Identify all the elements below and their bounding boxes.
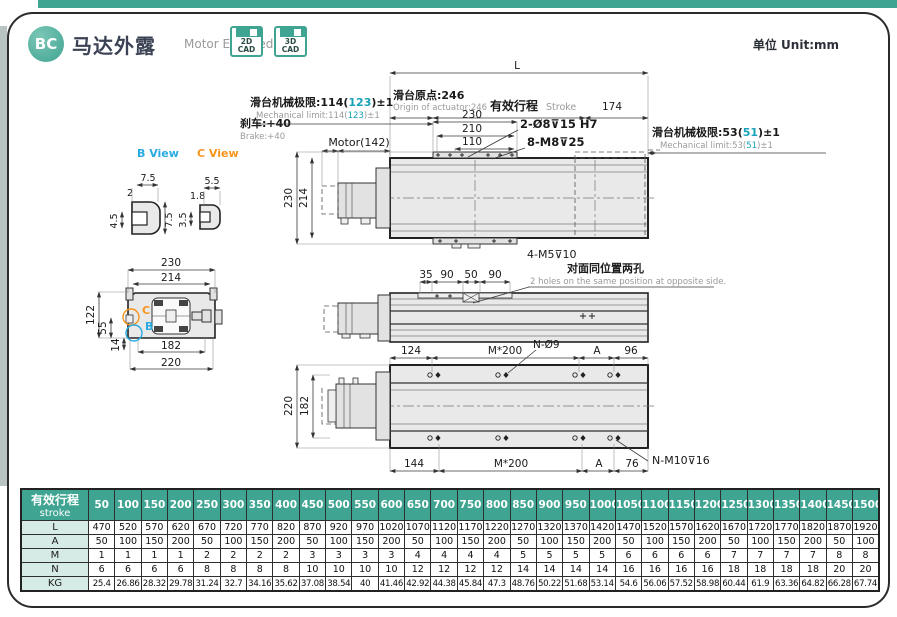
row-label-a: A bbox=[21, 535, 89, 549]
stroke-col-header: 500 bbox=[326, 489, 352, 521]
table-cell: 4 bbox=[431, 549, 457, 563]
table-cell: 56.06 bbox=[642, 577, 668, 592]
dim-c-35: 3.5 bbox=[178, 212, 189, 227]
dim-76: 76 bbox=[625, 458, 639, 470]
table-cell: 570 bbox=[141, 521, 167, 535]
stroke-col-header: 1500 bbox=[852, 489, 879, 521]
stroke-col-header: 750 bbox=[457, 489, 483, 521]
note-opposite-holes-cn: 对面同位置两孔 bbox=[567, 261, 644, 275]
dim-210: 210 bbox=[462, 123, 482, 135]
table-row: KG25.426.8628.3229.7831.2432.734.1635.62… bbox=[21, 577, 879, 592]
table-cell: 18 bbox=[773, 563, 799, 577]
table-cell: 1570 bbox=[668, 521, 694, 535]
technical-drawing: L 滑台原点:246 Origin of actuator:246 有效行程 S… bbox=[0, 0, 897, 487]
top-view-drawing: L 滑台原点:246 Origin of actuator:246 有效行程 S… bbox=[240, 60, 826, 261]
table-cell: 14 bbox=[589, 563, 615, 577]
dim-stroke-en: Stroke bbox=[546, 102, 576, 113]
table-cell: 200 bbox=[800, 535, 826, 549]
dim-s14: 14 bbox=[110, 338, 122, 352]
table-cell: 100 bbox=[536, 535, 562, 549]
table-cell: 28.32 bbox=[141, 577, 167, 592]
dim-b-75-right: 7.5 bbox=[164, 212, 175, 227]
table-cell: 41.46 bbox=[378, 577, 404, 592]
table-cell: 1820 bbox=[800, 521, 826, 535]
table-cell: 100 bbox=[747, 535, 773, 549]
table-cell: 50 bbox=[615, 535, 641, 549]
table-cell: 920 bbox=[326, 521, 352, 535]
c-detail-view: C View 5.5 1.8 3.5 bbox=[178, 147, 239, 229]
dim-m200-bottom: M*200 bbox=[494, 458, 528, 470]
table-cell: 200 bbox=[378, 535, 404, 549]
callout-m10-holes: N-M10⊽16 bbox=[652, 454, 710, 467]
table-cell: 8 bbox=[220, 563, 246, 577]
table-cell: 58.98 bbox=[694, 577, 720, 592]
stroke-header-cn: 有效行程 bbox=[22, 491, 88, 508]
dim-stroke-cn: 有效行程 bbox=[490, 98, 538, 113]
table-cell: 6 bbox=[694, 549, 720, 563]
table-cell: 10 bbox=[352, 563, 378, 577]
dim-124: 124 bbox=[401, 345, 421, 357]
table-cell: 12 bbox=[484, 563, 510, 577]
table-cell: 12 bbox=[405, 563, 431, 577]
b-view-label: B View bbox=[137, 147, 179, 160]
table-cell: 670 bbox=[194, 521, 220, 535]
stroke-col-header: 650 bbox=[405, 489, 431, 521]
table-cell: 1 bbox=[168, 549, 194, 563]
table-cell: 50 bbox=[826, 535, 852, 549]
table-cell: 150 bbox=[563, 535, 589, 549]
dim-144: 144 bbox=[404, 458, 424, 470]
table-cell: 1670 bbox=[721, 521, 747, 535]
stroke-col-header: 250 bbox=[194, 489, 220, 521]
table-cell: 10 bbox=[299, 563, 325, 577]
dim-s220: 220 bbox=[161, 357, 181, 369]
table-cell: 47.3 bbox=[484, 577, 510, 592]
table-cell: 100 bbox=[642, 535, 668, 549]
table-cell: 57.52 bbox=[668, 577, 694, 592]
table-cell: 1 bbox=[115, 549, 141, 563]
table-cell: 18 bbox=[747, 563, 773, 577]
table-cell: 6 bbox=[89, 563, 115, 577]
table-cell: 1370 bbox=[563, 521, 589, 535]
table-cell: 720 bbox=[220, 521, 246, 535]
table-cell: 520 bbox=[115, 521, 141, 535]
stroke-col-header: 550 bbox=[352, 489, 378, 521]
stroke-col-header: 200 bbox=[168, 489, 194, 521]
stroke-table-wrap: 有效行程stroke501001502002503003504004505005… bbox=[20, 488, 880, 592]
table-cell: 620 bbox=[168, 521, 194, 535]
stroke-col-header: 1450 bbox=[826, 489, 852, 521]
table-cell: 150 bbox=[141, 535, 167, 549]
stroke-col-header: 100 bbox=[115, 489, 141, 521]
dim-174: 174 bbox=[602, 101, 622, 113]
callout-m5-holes: 4-M5⊽10 bbox=[527, 248, 577, 261]
table-cell: 5 bbox=[563, 549, 589, 563]
table-cell: 16 bbox=[615, 563, 641, 577]
table-cell: 100 bbox=[220, 535, 246, 549]
table-cell: 60.44 bbox=[721, 577, 747, 592]
table-cell: 5 bbox=[589, 549, 615, 563]
table-cell: 150 bbox=[352, 535, 378, 549]
table-row: N666688881010101012121212141414141616161… bbox=[21, 563, 879, 577]
table-cell: 1320 bbox=[536, 521, 562, 535]
stroke-col-header: 1400 bbox=[800, 489, 826, 521]
dim-b-75-top: 7.5 bbox=[140, 173, 155, 184]
stroke-col-header: 800 bbox=[484, 489, 510, 521]
table-cell: 1520 bbox=[642, 521, 668, 535]
table-cell: 2 bbox=[194, 549, 220, 563]
stroke-col-header: 1150 bbox=[668, 489, 694, 521]
mech-limit-right-en: Mechanical limit:53(51)±1 bbox=[660, 141, 773, 151]
dim-motor: Motor(142) bbox=[328, 136, 389, 149]
stroke-dimension-table: 有效行程stroke501001502002503003504004505005… bbox=[20, 488, 880, 592]
mech-limit-right-cn: 滑台机械极限:53(51)±1 bbox=[652, 125, 780, 139]
row-label-l: L bbox=[21, 521, 89, 535]
table-cell: 4 bbox=[405, 549, 431, 563]
dim-c-55: 5.5 bbox=[204, 176, 219, 187]
table-cell: 25.4 bbox=[89, 577, 115, 592]
table-cell: 50 bbox=[405, 535, 431, 549]
stroke-col-header: 600 bbox=[378, 489, 404, 521]
stroke-col-header: 150 bbox=[141, 489, 167, 521]
table-cell: 8 bbox=[194, 563, 220, 577]
table-cell: 18 bbox=[800, 563, 826, 577]
table-cell: 3 bbox=[299, 549, 325, 563]
table-cell: 12 bbox=[431, 563, 457, 577]
callout-m8-holes: 8-M8⊽25 bbox=[527, 135, 585, 149]
table-cell: 4 bbox=[484, 549, 510, 563]
dim-brake-en: Brake:+40 bbox=[240, 132, 285, 142]
table-cell: 20 bbox=[826, 563, 852, 577]
table-cell: 6 bbox=[615, 549, 641, 563]
table-cell: 1020 bbox=[378, 521, 404, 535]
table-cell: 6 bbox=[168, 563, 194, 577]
table-cell: 4 bbox=[457, 549, 483, 563]
table-cell: 8 bbox=[852, 549, 879, 563]
dim-b-45: 4.5 bbox=[109, 213, 120, 228]
dim-s230: 230 bbox=[161, 257, 181, 269]
table-cell: 1470 bbox=[615, 521, 641, 535]
table-cell: 1270 bbox=[510, 521, 536, 535]
table-cell: 38.54 bbox=[326, 577, 352, 592]
table-cell: 150 bbox=[457, 535, 483, 549]
stroke-col-header: 1250 bbox=[721, 489, 747, 521]
stroke-col-header: 850 bbox=[510, 489, 536, 521]
table-cell: 61.9 bbox=[747, 577, 773, 592]
mech-limit-left-cn: 滑台机械极限:114(123)±1 bbox=[250, 95, 393, 109]
table-cell: 40 bbox=[352, 577, 378, 592]
stroke-col-header: 1300 bbox=[747, 489, 773, 521]
table-cell: 1 bbox=[89, 549, 115, 563]
table-cell: 970 bbox=[352, 521, 378, 535]
b-detail-view: B View 7.5 2 7.5 4.5 bbox=[109, 147, 179, 234]
note-opposite-holes-en: 2 holes on the same position at opposite… bbox=[530, 277, 726, 287]
table-cell: 7 bbox=[800, 549, 826, 563]
table-cell: 100 bbox=[326, 535, 352, 549]
dim-v230: 230 bbox=[283, 188, 295, 208]
stroke-col-header: 900 bbox=[536, 489, 562, 521]
table-cell: 820 bbox=[273, 521, 299, 535]
stroke-col-header: 1100 bbox=[642, 489, 668, 521]
table-cell: 3 bbox=[378, 549, 404, 563]
table-cell: 6 bbox=[141, 563, 167, 577]
stroke-col-header: 350 bbox=[247, 489, 273, 521]
table-cell: 50 bbox=[194, 535, 220, 549]
table-cell: 64.82 bbox=[800, 577, 826, 592]
dim-v220: 220 bbox=[283, 396, 295, 416]
table-cell: 26.86 bbox=[115, 577, 141, 592]
stroke-header-cell: 有效行程stroke bbox=[21, 489, 89, 521]
row-label-kg: KG bbox=[21, 577, 89, 592]
side-view-drawing: 35 90 50 90 对面同位置两孔 2 holes on the same … bbox=[324, 261, 726, 342]
dim-c-18: 1.8 bbox=[190, 191, 205, 202]
table-cell: 16 bbox=[642, 563, 668, 577]
table-row: M111122223333444455556666777788 bbox=[21, 549, 879, 563]
table-cell: 5 bbox=[510, 549, 536, 563]
table-cell: 470 bbox=[89, 521, 115, 535]
dim-96: 96 bbox=[624, 345, 638, 357]
table-cell: 1 bbox=[141, 549, 167, 563]
table-cell: 1170 bbox=[457, 521, 483, 535]
table-cell: 31.24 bbox=[194, 577, 220, 592]
table-cell: 54.6 bbox=[615, 577, 641, 592]
table-cell: 14 bbox=[536, 563, 562, 577]
stroke-col-header: 1000 bbox=[589, 489, 615, 521]
table-cell: 1070 bbox=[405, 521, 431, 535]
bottom-view-drawing: 124 M*200 A 96 N-Ø9 144 M*200 A 76 N-M10… bbox=[283, 339, 710, 471]
table-cell: 1870 bbox=[826, 521, 852, 535]
table-cell: 3 bbox=[326, 549, 352, 563]
table-cell: 50.22 bbox=[536, 577, 562, 592]
table-cell: 16 bbox=[694, 563, 720, 577]
table-cell: 8 bbox=[247, 563, 273, 577]
table-cell: 6 bbox=[668, 549, 694, 563]
table-cell: 12 bbox=[457, 563, 483, 577]
table-cell: 100 bbox=[431, 535, 457, 549]
table-cell: 50 bbox=[299, 535, 325, 549]
table-cell: 18 bbox=[721, 563, 747, 577]
detail-mark-C: C bbox=[142, 304, 150, 317]
table-cell: 150 bbox=[773, 535, 799, 549]
table-cell: 66.28 bbox=[826, 577, 852, 592]
stroke-col-header: 1350 bbox=[773, 489, 799, 521]
table-cell: 5 bbox=[536, 549, 562, 563]
table-cell: 150 bbox=[247, 535, 273, 549]
stroke-col-header: 50 bbox=[89, 489, 115, 521]
dim-230: 230 bbox=[462, 109, 482, 121]
table-cell: 10 bbox=[378, 563, 404, 577]
dim-A-top: A bbox=[593, 345, 601, 357]
table-cell: 51.68 bbox=[563, 577, 589, 592]
table-cell: 1220 bbox=[484, 521, 510, 535]
table-cell: 50 bbox=[510, 535, 536, 549]
dim-s214: 214 bbox=[161, 272, 181, 284]
table-cell: 45.84 bbox=[457, 577, 483, 592]
row-label-n: N bbox=[21, 563, 89, 577]
table-cell: 44.38 bbox=[431, 577, 457, 592]
stroke-col-header: 1050 bbox=[615, 489, 641, 521]
dim-origin-cn: 滑台原点:246 bbox=[393, 88, 465, 102]
dim-35: 35 bbox=[419, 269, 432, 281]
dim-s55: 55 bbox=[97, 321, 109, 334]
table-cell: 50 bbox=[721, 535, 747, 549]
table-row: A501001502005010015020050100150200501001… bbox=[21, 535, 879, 549]
stroke-col-header: 450 bbox=[299, 489, 325, 521]
cross-section-view: 230 214 122 55 14 182 220 C B bbox=[85, 257, 222, 369]
dim-s182: 182 bbox=[161, 340, 181, 352]
table-cell: 870 bbox=[299, 521, 325, 535]
dim-L: L bbox=[514, 60, 520, 72]
table-cell: 6 bbox=[642, 549, 668, 563]
dim-v214: 214 bbox=[298, 188, 310, 208]
table-cell: 50 bbox=[89, 535, 115, 549]
table-cell: 8 bbox=[826, 549, 852, 563]
stroke-col-header: 400 bbox=[273, 489, 299, 521]
callout-n-holes: N-Ø9 bbox=[533, 339, 560, 351]
table-cell: 1620 bbox=[694, 521, 720, 535]
stroke-col-header: 1200 bbox=[694, 489, 720, 521]
stroke-col-header: 300 bbox=[220, 489, 246, 521]
table-cell: 37.08 bbox=[299, 577, 325, 592]
table-cell: 200 bbox=[589, 535, 615, 549]
table-cell: 6 bbox=[115, 563, 141, 577]
table-cell: 14 bbox=[510, 563, 536, 577]
table-cell: 14 bbox=[563, 563, 589, 577]
table-cell: 63.36 bbox=[773, 577, 799, 592]
dim-s122: 122 bbox=[85, 305, 97, 325]
table-cell: 7 bbox=[721, 549, 747, 563]
c-view-label: C View bbox=[197, 147, 239, 160]
table-cell: 48.76 bbox=[510, 577, 536, 592]
table-cell: 200 bbox=[694, 535, 720, 549]
table-cell: 1770 bbox=[773, 521, 799, 535]
table-cell: 100 bbox=[852, 535, 879, 549]
table-cell: 29.78 bbox=[168, 577, 194, 592]
table-cell: 34.16 bbox=[247, 577, 273, 592]
dim-v182: 182 bbox=[299, 396, 311, 416]
table-row: L470520570620670720770820870920970102010… bbox=[21, 521, 879, 535]
table-cell: 10 bbox=[326, 563, 352, 577]
stroke-col-header: 950 bbox=[563, 489, 589, 521]
table-cell: 42.92 bbox=[405, 577, 431, 592]
mech-limit-left-en: Mechanical limit:114(123)±1 bbox=[256, 111, 380, 121]
stroke-header-en: stroke bbox=[22, 508, 88, 519]
dim-90a: 90 bbox=[440, 269, 453, 281]
table-cell: 1420 bbox=[589, 521, 615, 535]
catalog-page: BC 马达外露 Motor Exposed 2DCAD 3DCAD 单位 Uni… bbox=[0, 0, 897, 617]
table-cell: 200 bbox=[168, 535, 194, 549]
table-cell: 16 bbox=[668, 563, 694, 577]
table-cell: 7 bbox=[747, 549, 773, 563]
stroke-col-header: 700 bbox=[431, 489, 457, 521]
dim-90b: 90 bbox=[488, 269, 501, 281]
detail-mark-B: B bbox=[145, 320, 153, 333]
table-cell: 32.7 bbox=[220, 577, 246, 592]
dim-50: 50 bbox=[464, 269, 477, 281]
table-cell: 1120 bbox=[431, 521, 457, 535]
table-cell: 3 bbox=[352, 549, 378, 563]
table-cell: 200 bbox=[484, 535, 510, 549]
table-cell: 2 bbox=[273, 549, 299, 563]
table-cell: 8 bbox=[273, 563, 299, 577]
table-cell: 2 bbox=[247, 549, 273, 563]
table-cell: 200 bbox=[273, 535, 299, 549]
table-cell: 35.62 bbox=[273, 577, 299, 592]
table-cell: 1720 bbox=[747, 521, 773, 535]
table-cell: 2 bbox=[220, 549, 246, 563]
table-cell: 53.14 bbox=[589, 577, 615, 592]
table-cell: 770 bbox=[247, 521, 273, 535]
dim-110: 110 bbox=[462, 136, 482, 148]
table-cell: 20 bbox=[852, 563, 879, 577]
table-cell: 7 bbox=[773, 549, 799, 563]
table-cell: 1920 bbox=[852, 521, 879, 535]
dim-A-bottom: A bbox=[595, 458, 603, 470]
table-cell: 100 bbox=[115, 535, 141, 549]
callout-counterbore-holes: 2-Ø8⊽15 H7 bbox=[520, 117, 598, 131]
row-label-m: M bbox=[21, 549, 89, 563]
dim-m200-top: M*200 bbox=[488, 345, 522, 357]
table-cell: 150 bbox=[668, 535, 694, 549]
table-cell: 67.74 bbox=[852, 577, 879, 592]
